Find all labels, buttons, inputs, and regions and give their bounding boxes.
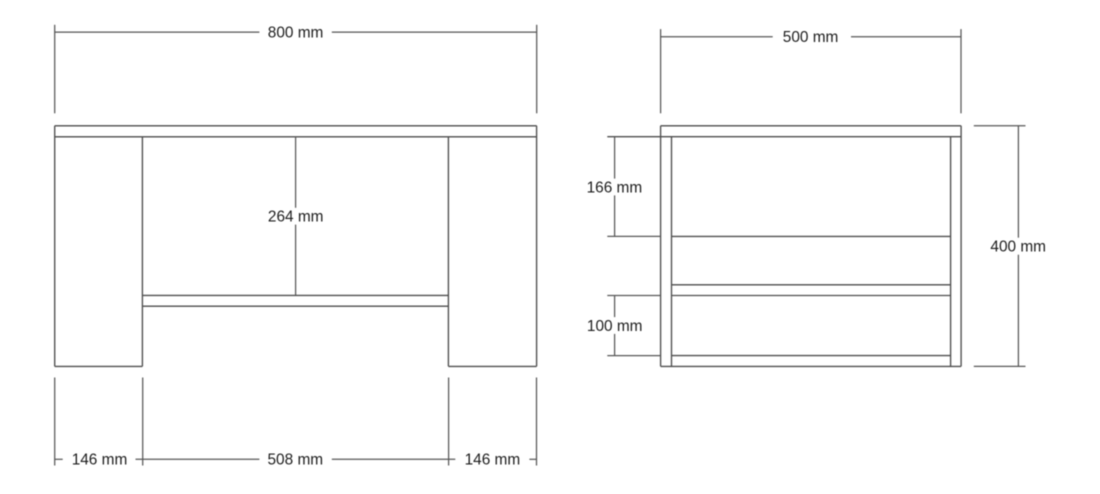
svg-text:100 mm: 100 mm [587,318,643,335]
svg-text:400 mm: 400 mm [990,239,1046,256]
svg-text:166 mm: 166 mm [587,179,643,196]
svg-text:264 mm: 264 mm [268,209,324,226]
svg-text:146 mm: 146 mm [465,452,521,469]
svg-text:508 mm: 508 mm [267,452,323,469]
svg-text:800 mm: 800 mm [268,25,324,42]
svg-text:146 mm: 146 mm [72,452,128,469]
svg-text:500 mm: 500 mm [783,29,839,46]
